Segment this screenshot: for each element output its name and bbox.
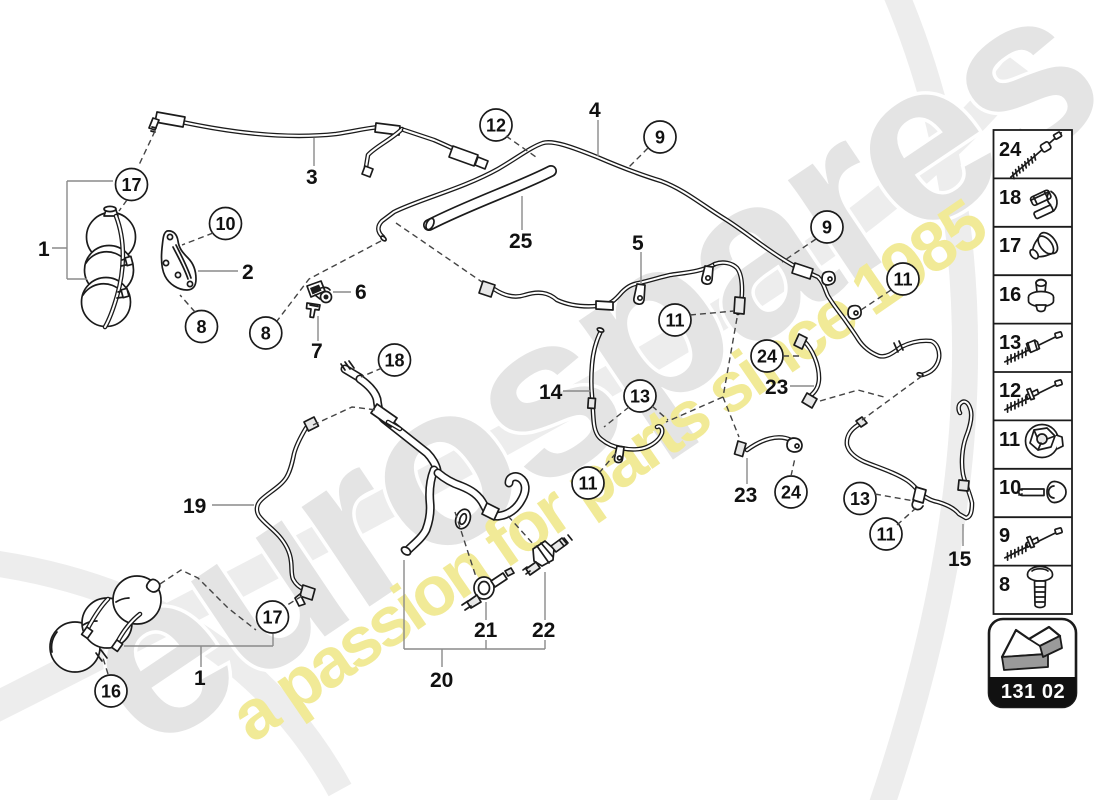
svg-text:131 02: 131 02: [1001, 681, 1065, 703]
svg-text:2: 2: [242, 261, 254, 284]
svg-text:9: 9: [822, 218, 832, 238]
svg-text:17: 17: [999, 235, 1021, 257]
svg-text:7: 7: [311, 340, 323, 363]
svg-text:12: 12: [486, 116, 506, 136]
svg-text:23: 23: [734, 484, 757, 507]
svg-text:11: 11: [876, 525, 895, 545]
svg-text:24: 24: [781, 483, 801, 503]
svg-text:24: 24: [999, 139, 1022, 161]
svg-text:25: 25: [509, 230, 533, 253]
svg-text:18: 18: [999, 187, 1021, 209]
svg-text:18: 18: [384, 351, 404, 371]
svg-text:8: 8: [196, 317, 206, 337]
svg-text:19: 19: [183, 495, 206, 518]
svg-text:10: 10: [215, 214, 235, 234]
svg-text:23: 23: [765, 376, 788, 399]
svg-text:13: 13: [999, 332, 1021, 354]
svg-text:9: 9: [999, 525, 1010, 547]
svg-text:4: 4: [589, 99, 601, 122]
svg-text:9: 9: [655, 128, 665, 148]
svg-text:12: 12: [999, 380, 1021, 402]
svg-text:8: 8: [261, 324, 271, 344]
svg-text:16: 16: [999, 284, 1021, 306]
svg-text:13: 13: [850, 489, 870, 509]
svg-text:6: 6: [355, 281, 367, 304]
svg-text:3: 3: [306, 166, 318, 189]
svg-text:14: 14: [539, 381, 563, 404]
svg-text:16: 16: [101, 682, 121, 702]
svg-text:11: 11: [999, 429, 1020, 451]
svg-text:11: 11: [665, 311, 684, 331]
svg-text:22: 22: [532, 619, 555, 642]
svg-text:1: 1: [194, 667, 206, 690]
svg-text:8: 8: [999, 574, 1010, 596]
svg-text:1: 1: [38, 238, 50, 261]
svg-text:11: 11: [893, 270, 912, 290]
svg-text:15: 15: [948, 548, 972, 571]
svg-text:17: 17: [121, 175, 141, 195]
svg-text:21: 21: [474, 619, 498, 642]
svg-text:13: 13: [630, 387, 650, 407]
svg-text:17: 17: [262, 608, 282, 628]
svg-text:5: 5: [632, 232, 644, 255]
svg-text:24: 24: [757, 347, 777, 367]
svg-text:20: 20: [430, 669, 453, 692]
svg-text:10: 10: [999, 477, 1021, 499]
svg-text:11: 11: [578, 474, 597, 494]
